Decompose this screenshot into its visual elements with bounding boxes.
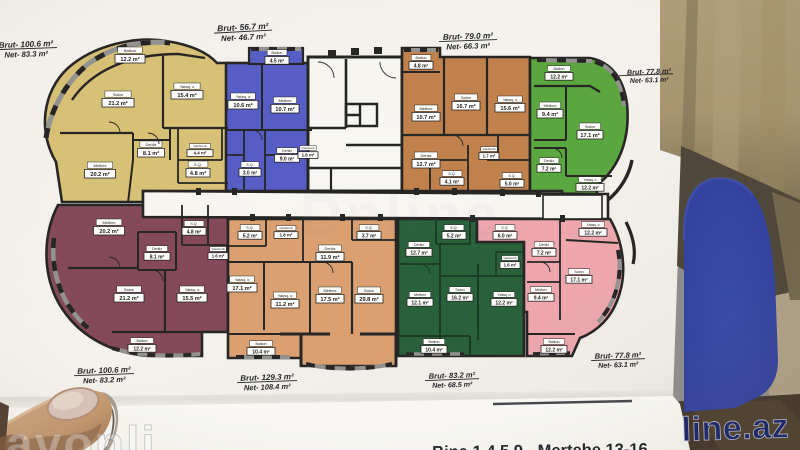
svg-text:avonli: avonli [6,418,157,450]
svg-text:line.az: line.az [681,407,790,449]
svg-text:Dnline: Dnline [300,183,501,248]
